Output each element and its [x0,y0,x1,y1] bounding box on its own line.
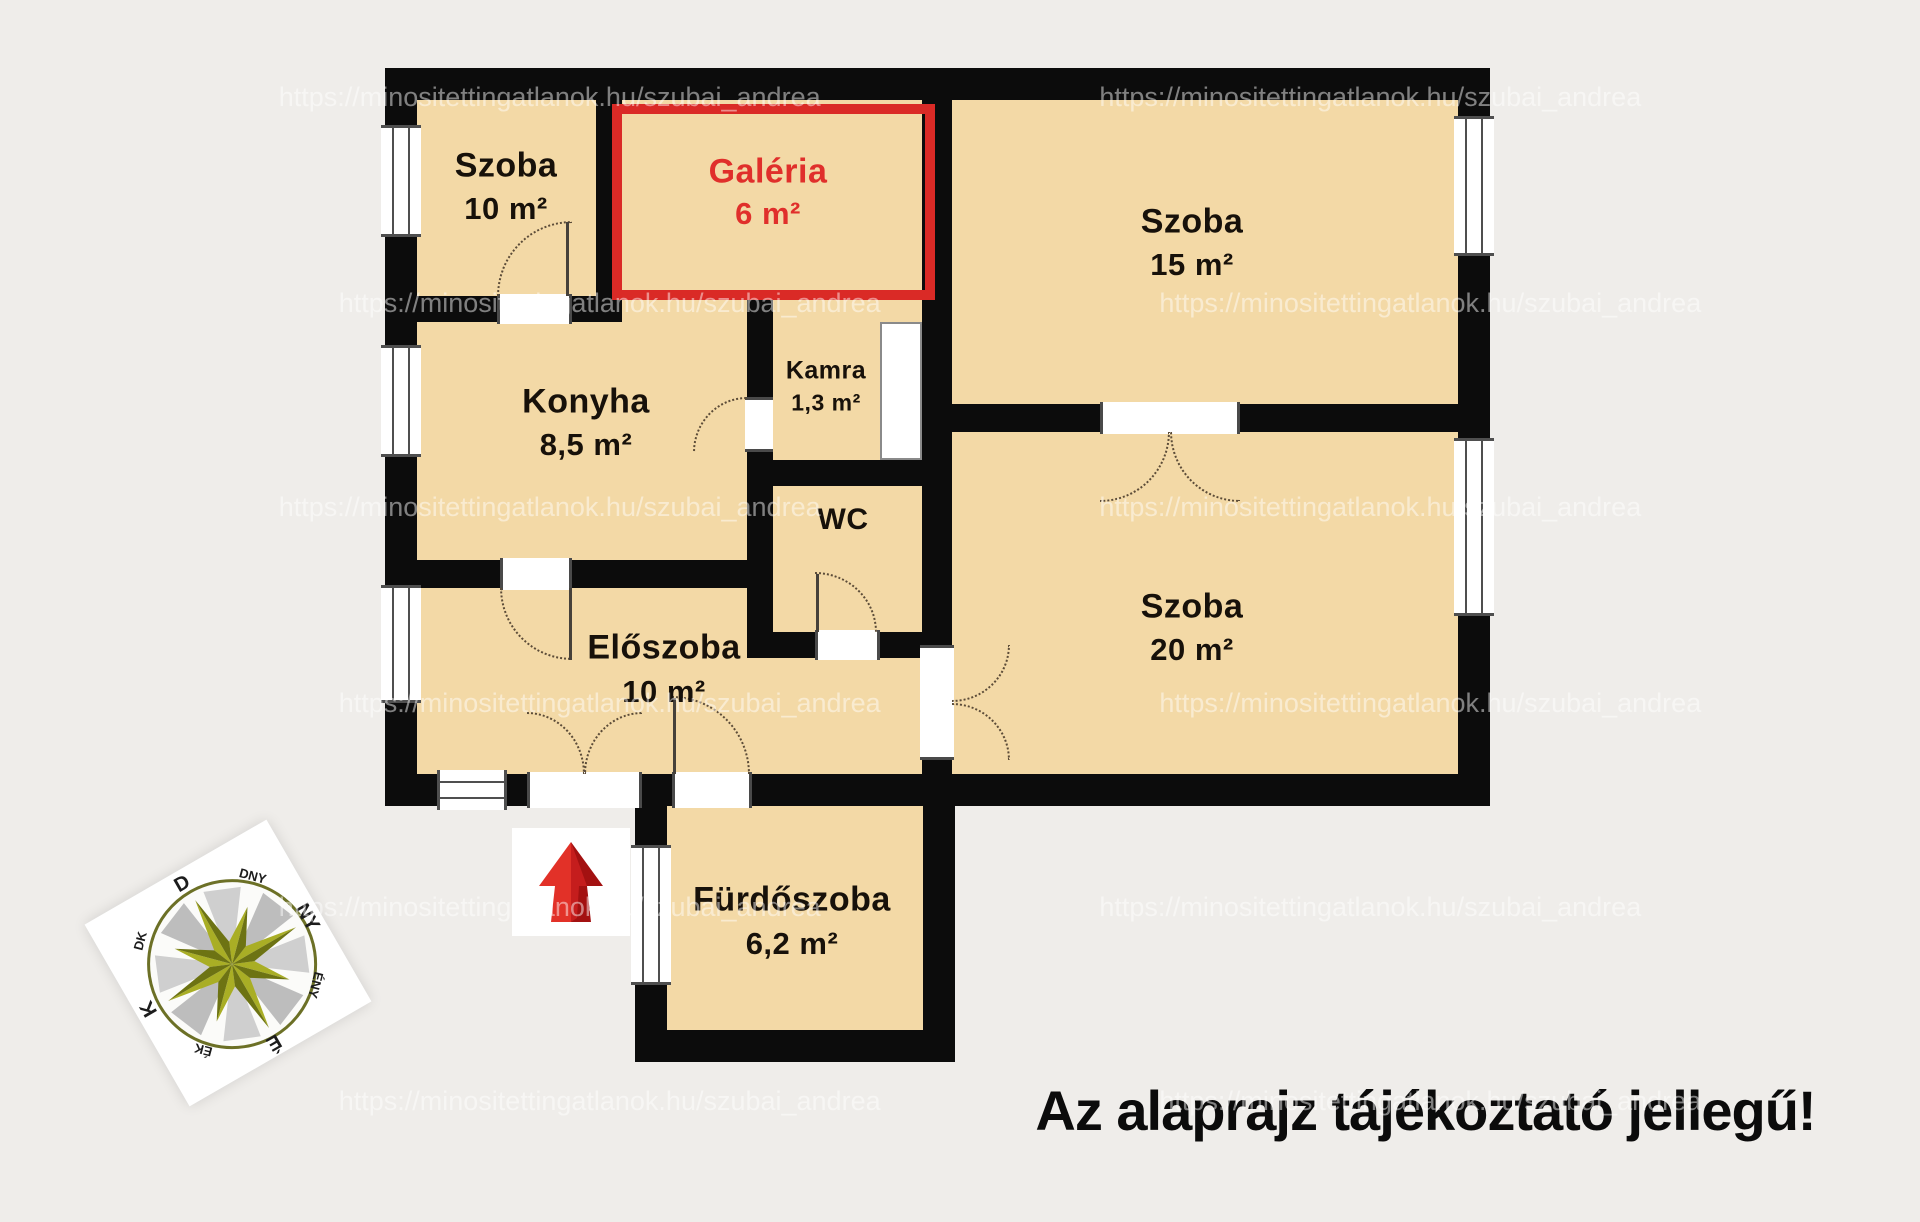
room-label-furdoszoba-area: 6,2 m² [746,926,839,962]
door-opening [1100,402,1240,434]
wall [635,806,667,845]
room-label-konyha-area: 8,5 m² [540,427,633,463]
entrance-arrow-icon [533,840,609,924]
door-leaf [816,574,819,632]
room-label-galeria-area: 6 m² [735,196,801,232]
door-opening [500,558,572,590]
room-label-kamra-name: Kamra [786,357,866,386]
wall [952,404,1100,432]
wall [417,774,437,806]
door-leaf [569,588,572,660]
disclaimer-text: Az alaprajz tájékoztató jellegű! [1003,1078,1848,1143]
window [381,345,421,457]
wall [922,760,952,774]
room-label-szoba15-name: Szoba [1141,203,1244,242]
window [437,770,507,810]
light-shaft [880,322,922,460]
door-leaf [566,222,569,296]
entrance-marker-box [512,828,630,936]
door-opening [920,645,954,760]
wall [880,632,922,658]
wall [417,560,500,588]
compass-circle [116,848,348,1080]
window [1454,116,1494,256]
wall [507,774,527,806]
window [381,125,421,237]
door-opening [497,294,572,324]
watermark-text: https://minositettingatlanok.hu/szubai_a… [339,1086,881,1117]
wall [385,68,1490,100]
wall [773,460,922,486]
window [381,585,421,703]
wall [635,1030,955,1062]
room-label-szoba10-area: 10 m² [464,191,547,227]
wall [747,300,773,397]
room-label-kamra-area: 1,3 m² [791,390,860,417]
wall [752,774,1458,806]
room-label-furdoszoba-name: Fürdőszoba [693,881,891,920]
room-label-szoba10-name: Szoba [455,147,558,186]
wall [572,560,747,588]
wall [1240,404,1458,432]
compass-rose: É ÉK K DK D DNY NY ÉNY [85,820,372,1107]
room-label-szoba20-area: 20 m² [1150,632,1233,668]
wall [923,806,955,1062]
floor-plan: Szoba 10 m² Galéria 6 m² Szoba 15 m² Kon… [0,0,1920,1222]
door-opening [527,772,642,808]
window [1454,438,1494,616]
door-opening [745,397,773,452]
room-label-wc-name: WC [818,503,869,537]
room-label-konyha-name: Konyha [522,383,650,422]
wall [773,632,815,658]
room-label-eloszoba-name: Előszoba [587,629,740,668]
wall [747,452,773,658]
room-label-szoba15-area: 15 m² [1150,247,1233,283]
room-label-eloszoba-area: 10 m² [622,674,705,710]
watermark-text: https://minositettingatlanok.hu/szubai_a… [1099,892,1641,923]
room-label-galeria-name: Galéria [709,153,828,192]
wall [417,296,497,322]
window [631,845,671,985]
compass-label-ne: ÉK [193,1040,214,1059]
door-opening [672,772,752,808]
wall [642,774,672,806]
door-opening [815,630,880,660]
room-label-szoba20-name: Szoba [1141,588,1244,627]
compass-star-icon [120,852,344,1076]
